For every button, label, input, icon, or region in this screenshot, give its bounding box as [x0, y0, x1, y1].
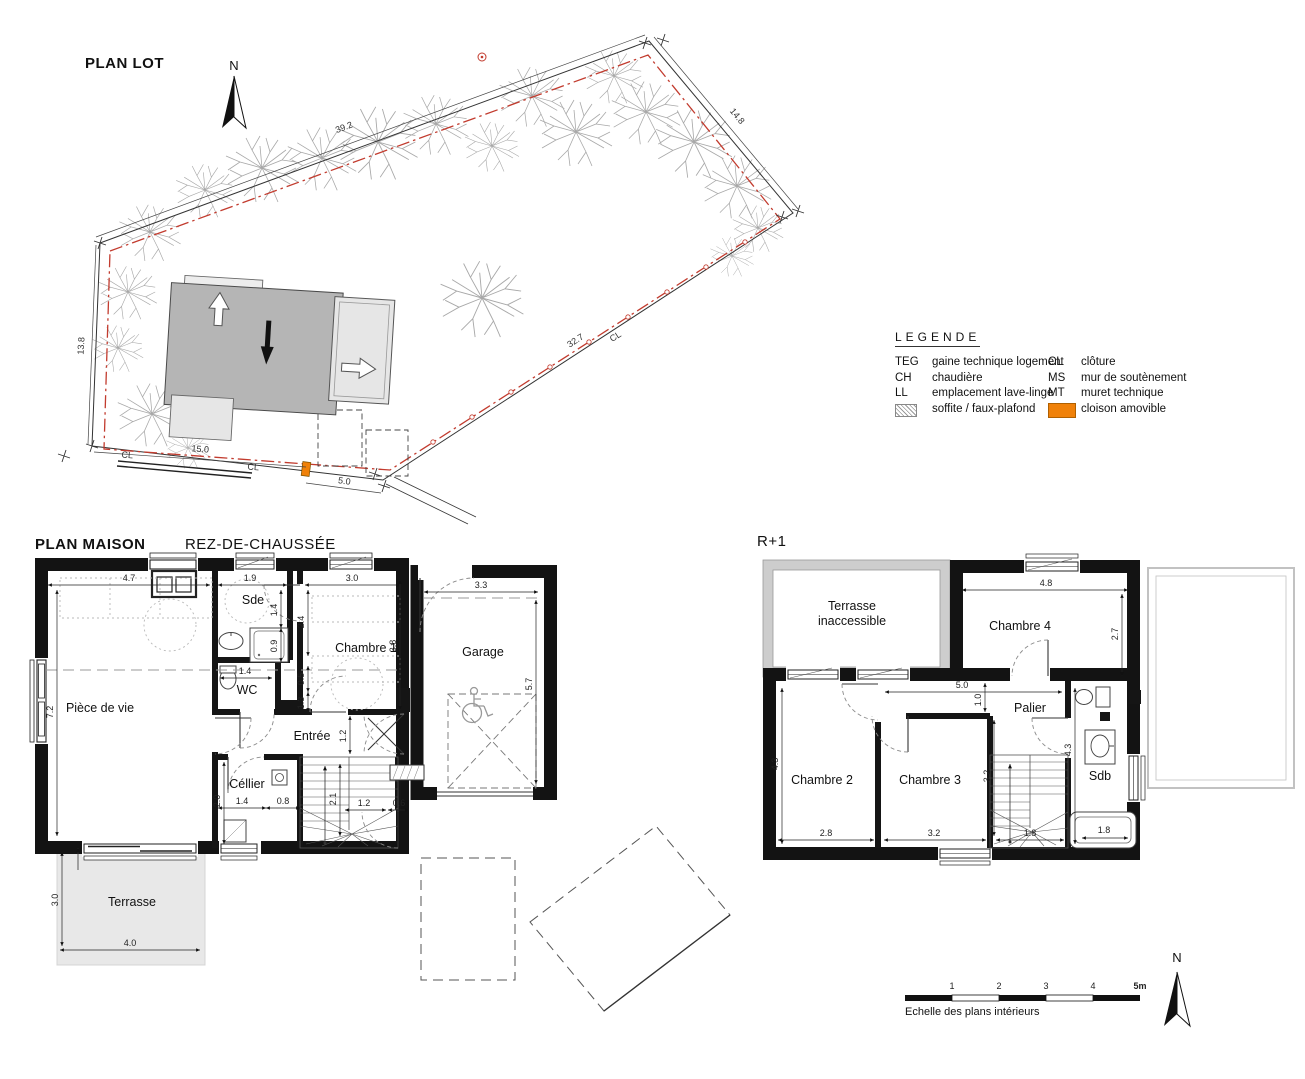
dim-bed4-h: 2.7 — [1110, 628, 1120, 641]
dim-hall-w: 1.2 — [358, 798, 371, 808]
legend-label: cloison amovible — [1081, 402, 1166, 418]
room-garage: Garage — [462, 645, 504, 659]
legend: LEGENDE TEG gaine technique logement CL … — [895, 330, 1225, 417]
washbasin-r1 — [1085, 730, 1115, 764]
gf-window-bed1 — [328, 553, 374, 573]
site-plan-title: PLAN LOT — [85, 55, 164, 72]
dim-stair-w: 0.8 — [277, 796, 290, 806]
room-landing: Palier — [1014, 701, 1046, 715]
scale-tick-5: 5m — [1133, 981, 1146, 991]
r1-window-bed2a — [786, 666, 840, 683]
legend-label: clôture — [1081, 355, 1116, 371]
dim-garage-w: 3.3 — [475, 580, 488, 590]
room-terrace-r1-l2: inaccessible — [818, 614, 886, 628]
legend-title: LEGENDE — [895, 330, 980, 347]
scale-tick-3: 3 — [1043, 981, 1048, 991]
scale-tick-2: 2 — [996, 981, 1001, 991]
ground-floor-plan: 4.7 1.9 3.0 3.3 1.4 0.9 2.4 3.8 5.7 7.2 … — [30, 553, 730, 1011]
dim-wc-w: 1.4 — [239, 666, 252, 676]
r1-vent-box — [1129, 690, 1141, 704]
road-edge — [386, 477, 476, 524]
gf-parking-dashed — [421, 858, 515, 980]
room-sde: Sde — [242, 593, 264, 607]
washer-box — [224, 820, 246, 842]
dim-tub-w: 1.8 — [1098, 825, 1111, 835]
gf-window-slider — [82, 840, 198, 860]
gf-window-cellar — [219, 840, 261, 860]
room-bed2: Chambre 2 — [791, 773, 853, 787]
site-dim-top-right: 14.8 — [728, 106, 747, 126]
scale-caption: Echelle des plans intérieurs — [905, 1006, 1040, 1018]
washbasin-sde — [219, 633, 243, 650]
toilet-gf — [220, 666, 236, 689]
scale-bar: 1 2 3 4 5m Echelle des plans intérieurs — [905, 981, 1147, 1018]
north-label-site: N — [229, 58, 238, 73]
legend-label: emplacement lave-linge — [932, 386, 1053, 402]
legend-label: soffite / faux-plafond — [932, 402, 1035, 418]
room-terrace-r1-l1: Terrasse — [828, 599, 876, 613]
ground-floor-subtitle: REZ-DE-CHAUSSÉE — [185, 536, 336, 553]
legend-abbr: LL — [895, 386, 931, 402]
driveway-outline — [318, 410, 408, 476]
dim-garage-h: 5.7 — [524, 678, 534, 691]
legend-label: gaine technique logement — [932, 355, 1064, 371]
legend-abbr: TEG — [895, 355, 931, 371]
gf-window-sde — [234, 553, 276, 573]
gf-window-living — [148, 553, 198, 597]
dim-bed1-w: 3.0 — [346, 573, 359, 583]
legend-abbr: CL — [1048, 355, 1080, 371]
r1-window-bed2b — [856, 666, 910, 683]
room-cellar: Céllier — [229, 777, 264, 791]
room-wc: WC — [237, 683, 258, 697]
site-dim-bottom: 15.0 — [191, 443, 209, 454]
dim-stair-w-r1: 1.8 — [1024, 828, 1037, 838]
survey-point-icon — [478, 53, 486, 61]
dim-bed3-w: 3.2 — [928, 828, 941, 838]
dim-bed2-h: 4.3 — [770, 758, 780, 771]
garage-door — [437, 787, 533, 801]
scale-tick-4: 4 — [1090, 981, 1095, 991]
r1-window-bed4 — [1024, 554, 1080, 575]
dim-bed2-w: 2.8 — [820, 828, 833, 838]
room-bed3: Chambre 3 — [899, 773, 961, 787]
room-terrace: Terrasse — [108, 895, 156, 909]
dim-shower-h: 0.9 — [269, 640, 279, 653]
north-label-bottom: N — [1172, 950, 1181, 965]
retaining-wall — [117, 461, 252, 478]
dim-entry-h: 1.2 — [338, 730, 348, 743]
room-bed1: Chambre 1 — [335, 641, 397, 655]
dim-landing-d: 1.0 — [973, 694, 983, 707]
dim-cellar-w: 1.4 — [236, 796, 249, 806]
drawing-sheet: 39.2 14.8 32.7 13.8 15.0 5.0 CL CL CL N — [0, 0, 1305, 1079]
room-entry: Entrée — [294, 729, 331, 743]
legend-abbr: MT — [1048, 386, 1080, 402]
gf-parking-rotated — [530, 826, 730, 1011]
r1-window-bottom — [938, 845, 992, 865]
boiler-box — [272, 770, 287, 785]
dim-stair-l: 2.1 — [328, 793, 338, 806]
dim-living-h: 7.2 — [45, 706, 55, 719]
r1-window-bath — [1125, 754, 1145, 802]
dim-wc-a: 0.5 — [296, 673, 306, 686]
fence-label-2: CL — [247, 462, 259, 473]
site-plan: 39.2 14.8 32.7 13.8 15.0 5.0 CL CL CL N — [58, 34, 804, 524]
first-floor-plan: 4.8 2.7 5.0 1.0 4.3 2.8 3.2 3.2 1.8 4.3 … — [763, 554, 1294, 865]
dim-bed4-w: 4.8 — [1040, 578, 1053, 588]
dim-wc-b: 1.3 — [296, 697, 306, 710]
first-floor-title: R+1 — [757, 533, 786, 550]
gf-window-left — [30, 658, 50, 744]
site-dim-gate: 5.0 — [338, 475, 352, 487]
gate-marker — [301, 462, 311, 477]
north-arrow-bottom-icon: N — [1164, 950, 1190, 1026]
legend-label: mur de soutènement — [1081, 371, 1186, 387]
fence-label-1: CL — [121, 450, 133, 461]
dim-sde-w: 1.9 — [244, 573, 257, 583]
room-bath: Sdb — [1089, 769, 1111, 783]
dim-bed3-h: 3.2 — [982, 770, 992, 783]
fence-label-3: CL — [608, 329, 623, 344]
dim-sde-h: 1.4 — [269, 604, 279, 617]
dim-terrace-h: 3.0 — [50, 894, 60, 907]
legend-label: chaudière — [932, 371, 983, 387]
dim-living-w: 4.7 — [123, 573, 136, 583]
orange-swatch-icon — [1048, 403, 1076, 418]
dim-landing-w: 5.0 — [956, 680, 969, 690]
site-dim-top-left: 39.2 — [334, 119, 354, 135]
ground-floor-title: PLAN MAISON — [35, 536, 146, 553]
legend-abbr: MS — [1048, 371, 1080, 387]
room-living: Pièce de vie — [66, 701, 134, 715]
dim-bath-h: 4.3 — [1063, 744, 1073, 757]
room-bed4: Chambre 4 — [989, 619, 1051, 633]
gf-wall-nib2 — [396, 688, 410, 712]
hatch-swatch-icon — [895, 404, 917, 417]
dim-bed1-d: 2.4 — [296, 616, 306, 629]
r1-roof-outline — [1148, 568, 1294, 788]
scale-tick-1: 1 — [949, 981, 954, 991]
dim-terrace-w: 4.0 — [124, 938, 137, 948]
house-footprint — [162, 275, 395, 450]
dim-cellar-h: 2.0 — [212, 795, 222, 808]
legend-abbr: CH — [895, 371, 931, 387]
north-arrow-site-icon: N — [222, 58, 246, 128]
teg-box — [390, 765, 424, 780]
site-dim-left: 13.8 — [76, 337, 87, 355]
dim-niche-w: 0.6 — [393, 798, 406, 808]
legend-label: muret technique — [1081, 386, 1163, 402]
